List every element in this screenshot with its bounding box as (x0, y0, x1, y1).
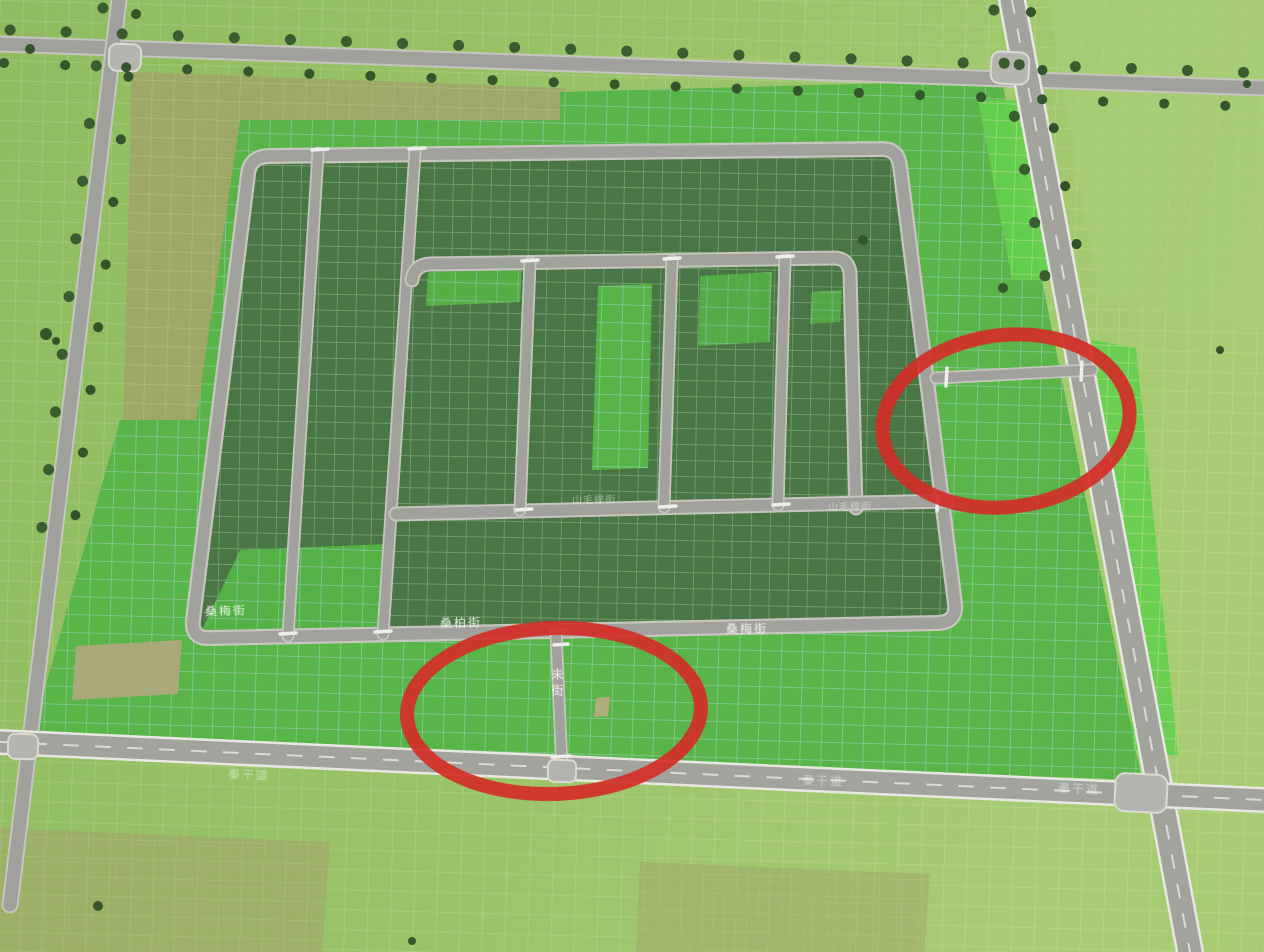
game-map-viewport[interactable]: 桑梅街 桑柏街 桑梅街 山毛榉街 山毛榉街 未街 秦干道 秦干道 秦干道 (0, 0, 1264, 952)
light-patch-3 (698, 272, 772, 346)
olive-patch-below-avenue-mid (636, 862, 930, 952)
map-canvas (0, 0, 1264, 952)
bush-icon (1216, 346, 1224, 354)
olive-patch-below-avenue-left (0, 828, 330, 952)
inner-vertical-c[interactable] (778, 259, 785, 505)
tan-patch (72, 640, 182, 700)
bush-icon (25, 44, 35, 54)
light-patch-2 (426, 268, 522, 306)
bush-icon (998, 283, 1008, 293)
inner-vertical-b[interactable] (664, 261, 672, 507)
light-patch-4 (810, 290, 842, 324)
bush-icon (1243, 80, 1251, 88)
bush-icon (93, 901, 103, 911)
bush-icon (40, 328, 52, 340)
bush-icon (858, 235, 868, 245)
tan-sliver (594, 697, 610, 717)
terrain (0, 0, 1264, 952)
bush-icon (52, 337, 60, 345)
bush-icon (408, 937, 416, 945)
light-patch-1 (592, 284, 652, 470)
bottom-connector-stub[interactable] (556, 632, 562, 770)
right-connector-stub[interactable] (936, 370, 1092, 378)
